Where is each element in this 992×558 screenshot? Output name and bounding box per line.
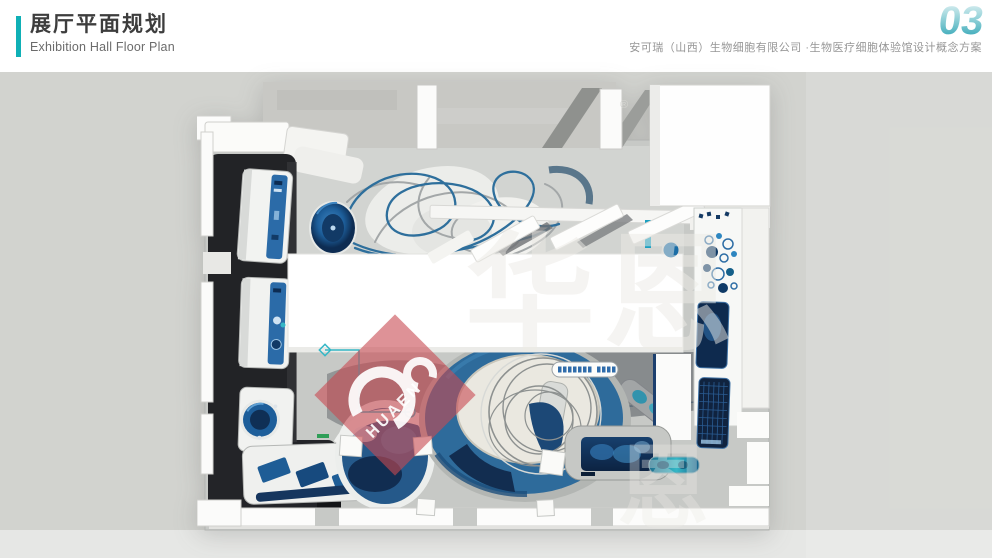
slide: 展厅平面规划 Exhibition Hall Floor Plan 03 安可瑞… xyxy=(0,0,992,558)
floorplan-render: 华恩 恩 ® HUAEN xyxy=(197,82,775,532)
door-post xyxy=(600,89,622,149)
title-accent-bar xyxy=(16,16,21,57)
background-right-column xyxy=(806,72,992,558)
registered-symbol: ® xyxy=(620,99,628,111)
page-number: 03 xyxy=(936,1,985,41)
display-kiosk-1 xyxy=(237,168,293,263)
faint-watermark-text-small: 恩 xyxy=(617,438,709,532)
title-block: 展厅平面规划 Exhibition Hall Floor Plan xyxy=(30,12,175,54)
content-area: 华恩 恩 ® HUAEN xyxy=(0,72,992,558)
display-kiosk-porthole xyxy=(238,387,294,453)
top-right-room xyxy=(650,85,770,206)
company-line: 安可瑞（山西）生物细胞有限公司 ·生物医疗细胞体验馆设计概念方案 xyxy=(629,39,982,55)
blue-disc-exhibit xyxy=(309,201,357,255)
door-post xyxy=(417,85,437,149)
slide-header: 展厅平面规划 Exhibition Hall Floor Plan 03 安可瑞… xyxy=(0,0,992,72)
page-title: 展厅平面规划 xyxy=(30,12,175,38)
faint-watermark-text-large: 华恩 xyxy=(465,222,741,368)
background-bottom-strip xyxy=(0,530,992,558)
page-subtitle: Exhibition Hall Floor Plan xyxy=(30,40,175,54)
